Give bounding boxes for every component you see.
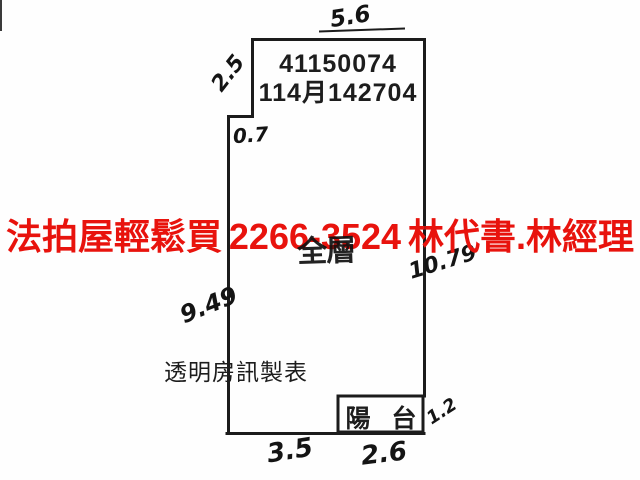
room-label-handwritten: 全層 (296, 225, 356, 271)
case-number-block: 41150074 114月142704 (252, 50, 424, 108)
maker-credit: 透明房訊製表 (164, 353, 308, 387)
scan-edge-artifact (0, 0, 2, 31)
floor-plan-page: 41150074 114月142704 透明房訊製表 陽 台 5.6 2.5 0… (0, 0, 640, 480)
balcony-label: 陽 台 (340, 399, 422, 435)
case-number-line1: 41150074 (252, 50, 424, 79)
dimension-left-step: 0.7 (232, 122, 269, 148)
case-number-line2: 114月142704 (252, 79, 424, 108)
dimension-bottom-balcony: 2.6 (359, 436, 408, 471)
ad-agency: 法拍屋輕鬆買 (6, 215, 222, 259)
ad-contacts: 林代書.林經理 (408, 215, 634, 259)
